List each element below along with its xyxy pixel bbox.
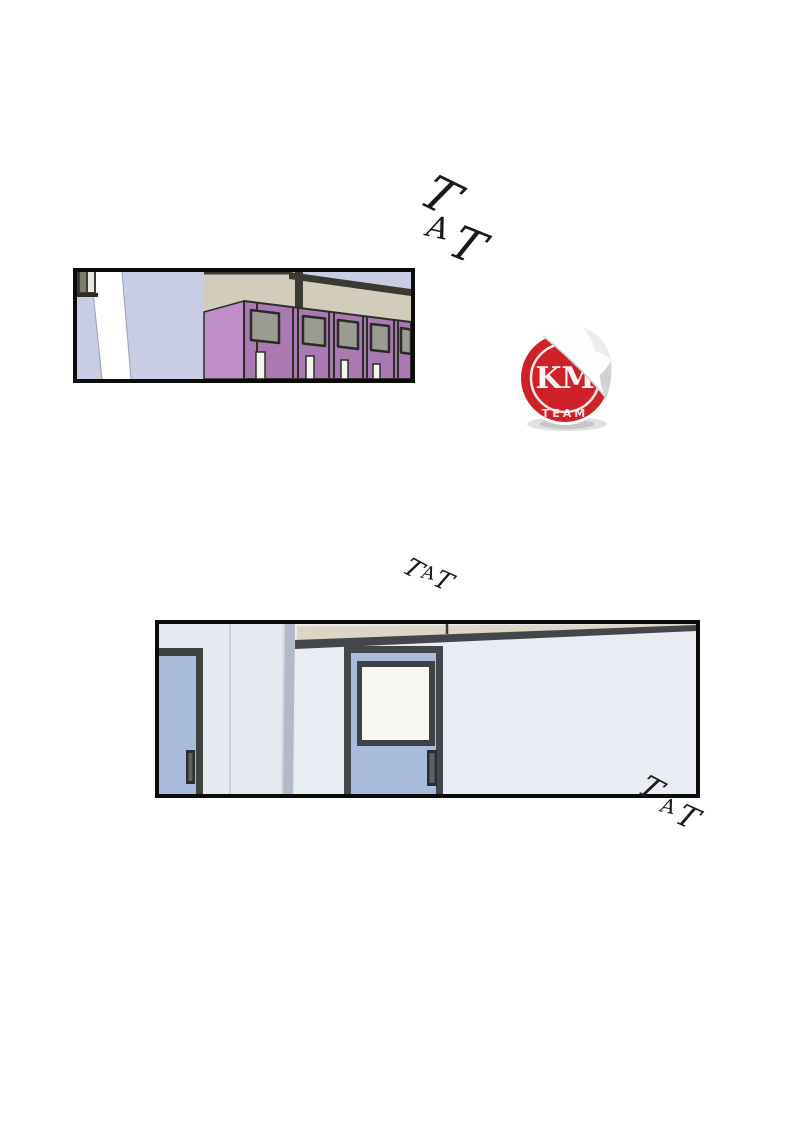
left-door: [159, 648, 203, 794]
sfx-tat-bottom: T A T: [634, 772, 729, 862]
scanlation-sticker: KM TEAM: [510, 320, 622, 438]
panel-locker-hallway: [73, 268, 415, 383]
sfx-letter: A: [424, 212, 451, 246]
sfx-letter: A: [659, 795, 677, 818]
main-door: [344, 646, 443, 794]
sfx-letter: T: [442, 219, 492, 271]
panel-door-hallway: [155, 620, 700, 798]
locker-side-face: [204, 301, 244, 379]
door-window-glass: [362, 667, 429, 740]
sfx-tat-middle: T A T: [399, 552, 479, 622]
corner-window: [77, 272, 98, 297]
door-hallway-art: [159, 624, 696, 794]
sticker-art: KM TEAM: [510, 320, 622, 438]
sfx-tat-top: T A T: [410, 172, 520, 282]
wall-post: [295, 272, 303, 310]
webtoon-page: T A T KM TEAM T A T: [0, 0, 800, 1135]
sticker-team-label: TEAM: [542, 407, 588, 420]
locker-hallway-art: [77, 272, 411, 379]
